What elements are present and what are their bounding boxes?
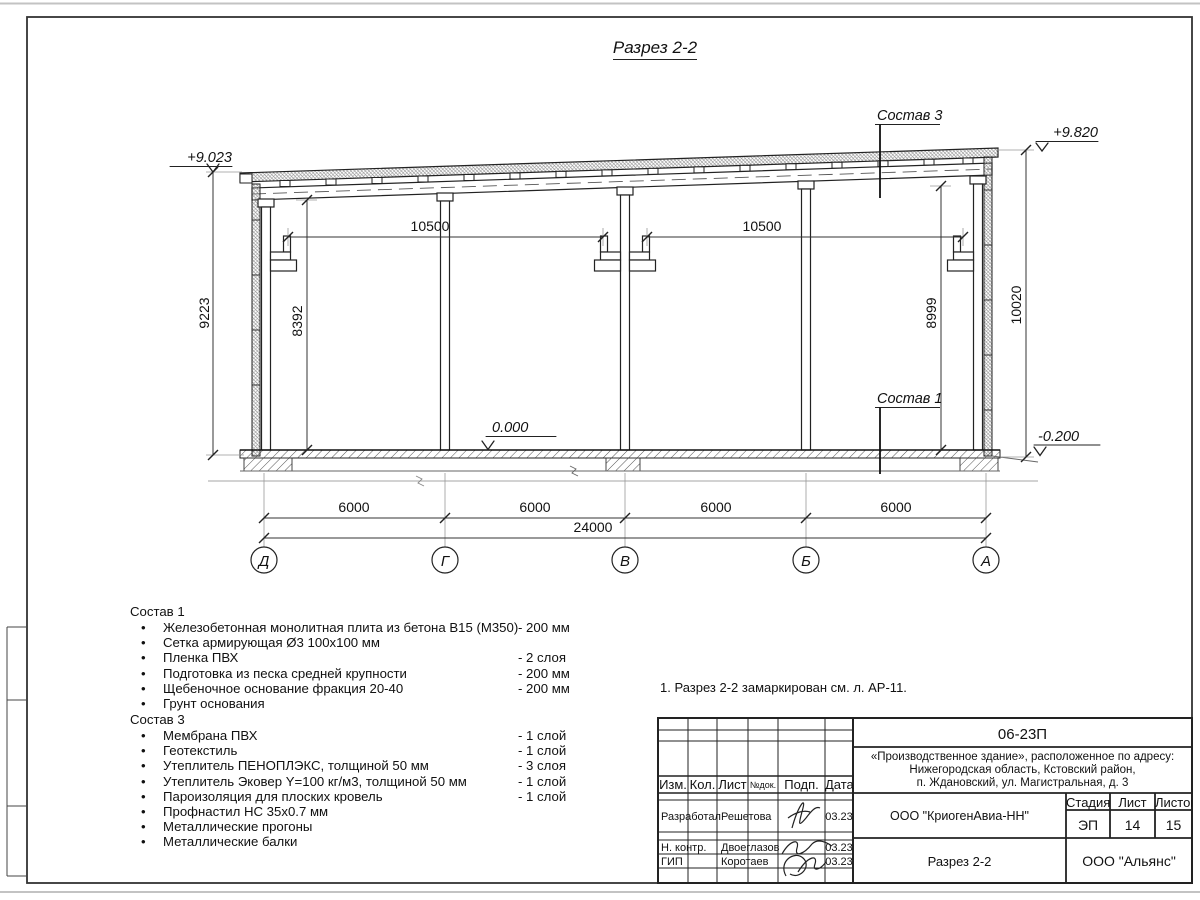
dim-left-outer: 9223 (196, 297, 212, 328)
floor-slab (240, 450, 1000, 458)
elevation-ground: -0.200 (1038, 429, 1079, 445)
list-item: Утеплитель Эковер Y=100 кг/м3, толщиной … (130, 774, 600, 789)
tb-company: ООО "Альянс" (1066, 853, 1192, 869)
tb-role-nkontr: Н. контр. (661, 842, 706, 854)
drawing-note: 1. Разрез 2-2 замаркирован см. л. АР-11. (660, 680, 907, 695)
tb-col-ndoc: №док. (748, 780, 778, 790)
tb-stage-label: Стадия (1066, 795, 1110, 810)
column-v (621, 195, 630, 450)
material-list-sostav1: Состав 1 Железобетонная монолитная плита… (130, 604, 600, 711)
elevation-left-top: +9.023 (187, 150, 232, 166)
dim-right-inner: 8999 (923, 297, 939, 328)
list-item: Сетка армирующая Ø3 100х100 мм (130, 635, 600, 650)
axis-label-d: Д (257, 553, 270, 570)
tb-name-nkontr: Двоеглазов (721, 842, 779, 854)
axis-bubbles: Д Г В Б А (251, 547, 999, 573)
list-item: Железобетонная монолитная плита из бетон… (130, 620, 600, 635)
tb-sheets-label: Листов (1155, 795, 1192, 810)
dim-span1: 10500 (411, 218, 450, 234)
dim-left-inner: 8392 (289, 305, 305, 336)
dim-right-outer: 10020 (1008, 285, 1024, 324)
dim-total: 24000 (574, 519, 613, 535)
list-item: Щебеночное основание фракция 20-40- 200 … (130, 681, 600, 696)
tb-date-nkontr: 03.23 (825, 842, 853, 854)
axis-label-a: А (980, 553, 991, 570)
elevation-right-top: +9.820 (1053, 125, 1098, 141)
tb-col-kol: Кол. (688, 777, 717, 792)
tb-date-razrabotal: 03.23 (825, 811, 853, 823)
signature-gip (784, 855, 826, 876)
column-cap-v (617, 187, 633, 195)
column-cap-d (258, 199, 274, 207)
label-sostav3: Состав 3 (877, 108, 942, 124)
tb-address-line3: п. Ждановский, ул. Магистральная, д. 3 (856, 777, 1189, 789)
tb-sheet-title: Разрез 2-2 (853, 854, 1066, 869)
tb-stage-value: ЭП (1066, 817, 1110, 833)
dimension-lines (213, 150, 1026, 538)
left-margin-blocks (7, 627, 27, 876)
column-a (974, 184, 983, 450)
list-item: Профнастил НС 35х0.7 мм (130, 804, 600, 819)
dim-bay-2: 6000 (519, 499, 550, 515)
dim-span2: 10500 (743, 218, 782, 234)
columns (258, 176, 986, 450)
column-d (262, 207, 271, 450)
tb-name-gip: Коротаев (721, 856, 769, 868)
tb-address-line2: Нижегородская область, Кстовский район, (856, 764, 1189, 776)
list-item: Утеплитель ПЕНОПЛЭКС, толщиной 50 мм- 3 … (130, 758, 600, 773)
list-item: Мембрана ПВХ- 1 слой (130, 728, 600, 743)
drawing-sheet: 10500 10500 9223 8392 8999 10020 6000 60… (0, 0, 1200, 900)
tb-sheets-value: 15 (1155, 817, 1192, 833)
list-title: Состав 3 (130, 712, 600, 728)
tb-date-gip: 03.23 (825, 856, 853, 868)
tb-sheet-label: Лист (1110, 795, 1155, 810)
foundation-pads (244, 458, 998, 471)
tb-sheet-value: 14 (1110, 817, 1155, 833)
label-sostav1: Состав 1 (877, 391, 942, 407)
tb-col-data: Дата (825, 777, 853, 792)
tb-col-izm: Изм. (658, 777, 688, 792)
list-item: Грунт основания (130, 696, 600, 711)
dim-bay-1: 6000 (338, 499, 369, 515)
dim-bay-3: 6000 (700, 499, 731, 515)
list-item: Подготовка из песка средней крупности- 2… (130, 666, 600, 681)
elevation-floor: 0.000 (492, 420, 528, 436)
list-title: Состав 1 (130, 604, 600, 620)
wall-left (252, 184, 260, 456)
list-item: Пароизоляция для плоских кровель- 1 слой (130, 789, 600, 804)
wall-right (984, 157, 992, 456)
tb-name-razrabotal: Решетова (721, 811, 771, 823)
signature-razrabotal (788, 803, 820, 828)
page-title: Разрез 2-2 (545, 38, 765, 58)
column-cap-b (798, 181, 814, 189)
dimension-ticks (208, 145, 1031, 543)
tb-col-list: Лист (717, 777, 748, 792)
list-item: Металлические прогоны (130, 819, 600, 834)
tb-project-code: 06-23П (853, 726, 1192, 743)
column-b (802, 189, 811, 450)
tb-col-podp: Подп. (778, 777, 825, 792)
column-cap-g (437, 193, 453, 201)
tb-address-line1: «Производственное здание», расположенное… (856, 751, 1189, 763)
material-list-sostav3: Состав 3 Мембрана ПВХ- 1 слой Геотекстил… (130, 712, 600, 850)
column-cap-a (970, 176, 986, 184)
list-item: Пленка ПВХ- 2 слоя (130, 650, 600, 665)
dim-bay-4: 6000 (880, 499, 911, 515)
axis-label-v: В (620, 553, 630, 570)
tb-role-gip: ГИП (661, 856, 683, 868)
column-g (441, 201, 450, 450)
list-item: Металлические балки (130, 834, 600, 849)
list-item: Геотекстиль- 1 слой (130, 743, 600, 758)
axis-label-b: Б (801, 553, 811, 570)
tb-role-razrabotal: Разработал (661, 811, 721, 823)
roof-edge-block (240, 174, 252, 183)
tb-org: ООО "КриогенАвиа-НН" (853, 809, 1066, 823)
